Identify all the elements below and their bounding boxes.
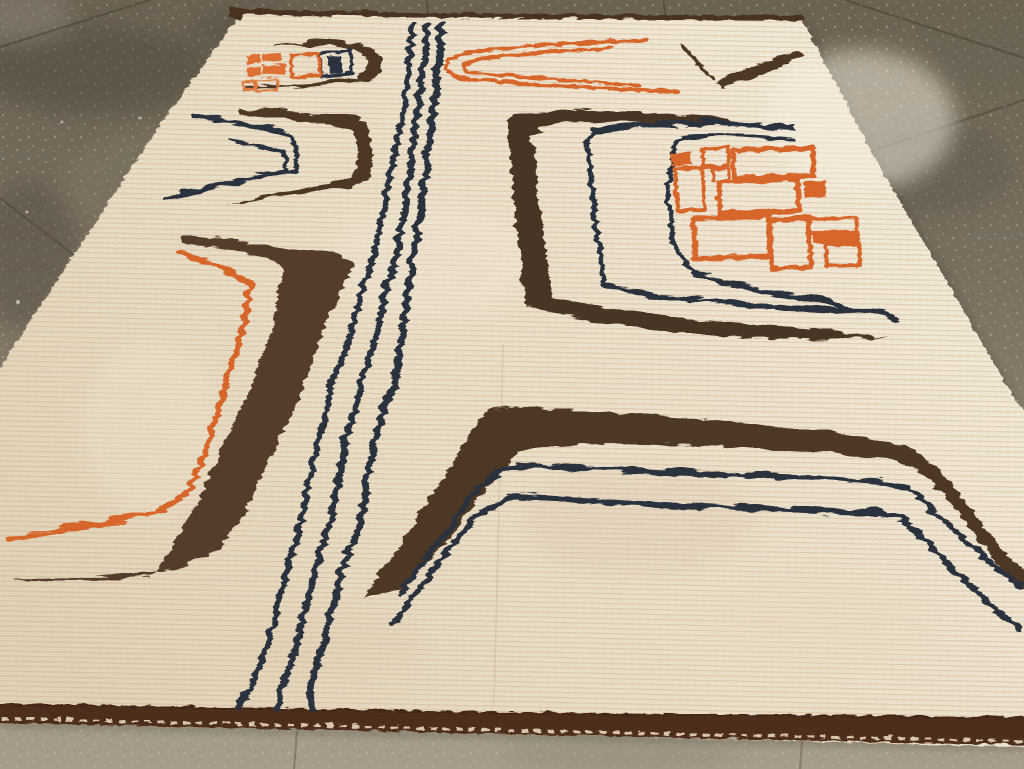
motif-topleft-orange-cell xyxy=(246,66,259,76)
rug-shading xyxy=(710,575,930,665)
motif-topleft-navy-bar xyxy=(327,54,341,72)
motif-topleft-orange-cell xyxy=(261,63,285,74)
motif-right-orange-cell-filled xyxy=(803,179,826,196)
rug-photo xyxy=(0,0,1024,769)
motif-topleft-orange-cell xyxy=(246,54,259,64)
floor-sparkle xyxy=(16,300,20,304)
floor-sparkle xyxy=(138,117,142,120)
floor-sparkle xyxy=(61,121,64,124)
floor-sparkle xyxy=(26,211,29,214)
rug-highlight xyxy=(765,50,955,190)
rug-shading xyxy=(520,465,760,575)
rug-highlight xyxy=(80,340,220,520)
motif-right-orange-cell-filled xyxy=(671,151,691,165)
motif-topleft-orange-cell xyxy=(261,52,280,62)
rug-photo-svg xyxy=(0,0,1024,769)
